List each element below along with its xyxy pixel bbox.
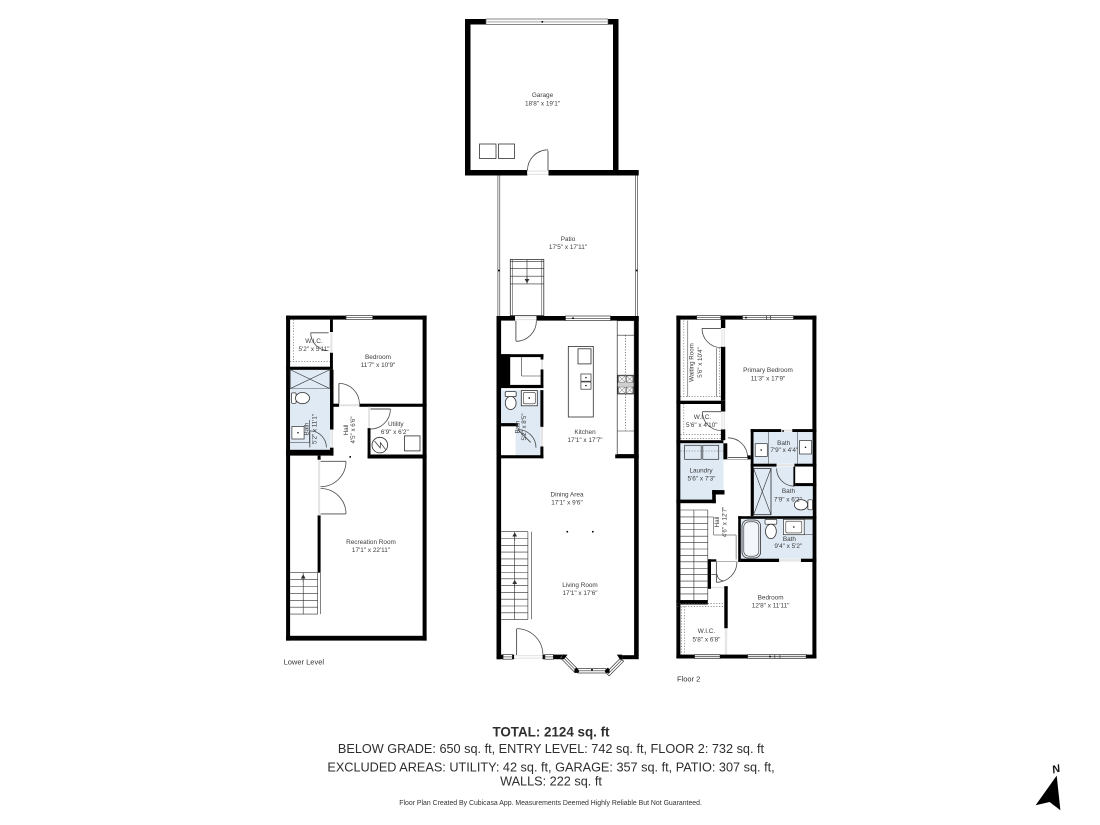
- svg-text:Kitchen: Kitchen: [574, 429, 596, 436]
- svg-text:Bedroom: Bedroom: [758, 595, 784, 602]
- svg-text:17'1" x 17'6": 17'1" x 17'6": [562, 590, 597, 597]
- svg-text:W.I.C.: W.I.C.: [305, 338, 323, 345]
- svg-text:5'6" x 10'4": 5'6" x 10'4": [697, 347, 704, 378]
- svg-text:BELOW GRADE: 650 sq. ft, ENTRY: BELOW GRADE: 650 sq. ft, ENTRY LEVEL: 74…: [338, 742, 765, 756]
- svg-text:WALLS: 222 sq. ft: WALLS: 222 sq. ft: [500, 775, 602, 789]
- svg-text:Bath: Bath: [783, 536, 797, 543]
- svg-text:Living Room: Living Room: [562, 582, 598, 589]
- svg-text:9'4" x 5'2": 9'4" x 5'2": [774, 543, 802, 550]
- svg-text:4'6" x 12'7": 4'6" x 12'7": [722, 507, 729, 538]
- svg-text:Recreation Room: Recreation Room: [346, 539, 396, 546]
- svg-text:Floor 2: Floor 2: [677, 675, 700, 684]
- svg-text:W.I.C.: W.I.C.: [698, 628, 716, 635]
- svg-text:6'9" x 6'2": 6'9" x 6'2": [381, 429, 409, 436]
- svg-text:4'5" x 6'6": 4'5" x 6'6": [350, 416, 357, 443]
- svg-text:5'6" x 4'10": 5'6" x 4'10": [686, 422, 718, 429]
- svg-text:5'2" x 8'5": 5'2" x 8'5": [521, 413, 528, 440]
- svg-text:Primary Bedroom: Primary Bedroom: [743, 367, 793, 374]
- svg-text:5'2" x 11'1": 5'2" x 11'1": [312, 414, 319, 444]
- svg-text:Hall: Hall: [714, 517, 721, 528]
- svg-text:Utility: Utility: [388, 421, 404, 428]
- svg-text:Garage: Garage: [532, 92, 554, 99]
- svg-text:11'3" x 17'9": 11'3" x 17'9": [751, 376, 786, 383]
- svg-text:Dining Area: Dining Area: [550, 492, 583, 499]
- svg-text:Bedroom: Bedroom: [365, 354, 391, 361]
- svg-text:TOTAL: 2124 sq. ft: TOTAL: 2124 sq. ft: [492, 724, 610, 739]
- svg-text:5'2" x 5'11": 5'2" x 5'11": [298, 346, 329, 353]
- svg-text:Lower Level: Lower Level: [284, 657, 325, 666]
- svg-text:EXCLUDED AREAS: UTILITY: 42 sq: EXCLUDED AREAS: UTILITY: 42 sq. ft, GARA…: [327, 761, 774, 775]
- svg-text:Bath: Bath: [777, 440, 791, 447]
- svg-text:17'5" x 17'11": 17'5" x 17'11": [549, 244, 587, 251]
- svg-text:5'6" x 7'3": 5'6" x 7'3": [688, 476, 716, 483]
- svg-text:Bath: Bath: [304, 422, 311, 435]
- svg-text:17'1" x 22'11": 17'1" x 22'11": [352, 547, 390, 554]
- svg-text:7'9" x 4'4": 7'9" x 4'4": [770, 447, 798, 454]
- svg-text:Laundry: Laundry: [689, 468, 713, 475]
- svg-text:W.I.C.: W.I.C.: [694, 414, 712, 421]
- svg-text:17'1" x 17'7": 17'1" x 17'7": [567, 437, 602, 444]
- svg-text:Floor Plan Created By Cubicasa: Floor Plan Created By Cubicasa App. Meas…: [399, 800, 702, 807]
- svg-text:5'8" x 6'8": 5'8" x 6'8": [693, 636, 721, 643]
- svg-text:Bath: Bath: [782, 488, 796, 495]
- svg-text:18'8" x 19'1": 18'8" x 19'1": [525, 100, 560, 107]
- svg-text:Patio: Patio: [561, 236, 576, 243]
- svg-text:Waiting Room: Waiting Room: [688, 343, 695, 382]
- svg-text:7'9" x 6'2": 7'9" x 6'2": [774, 496, 802, 503]
- svg-text:12'8" x 11'11": 12'8" x 11'11": [752, 602, 790, 609]
- svg-text:11'7" x 10'9": 11'7" x 10'9": [361, 362, 396, 369]
- svg-text:17'1" x 9'6": 17'1" x 9'6": [551, 499, 583, 506]
